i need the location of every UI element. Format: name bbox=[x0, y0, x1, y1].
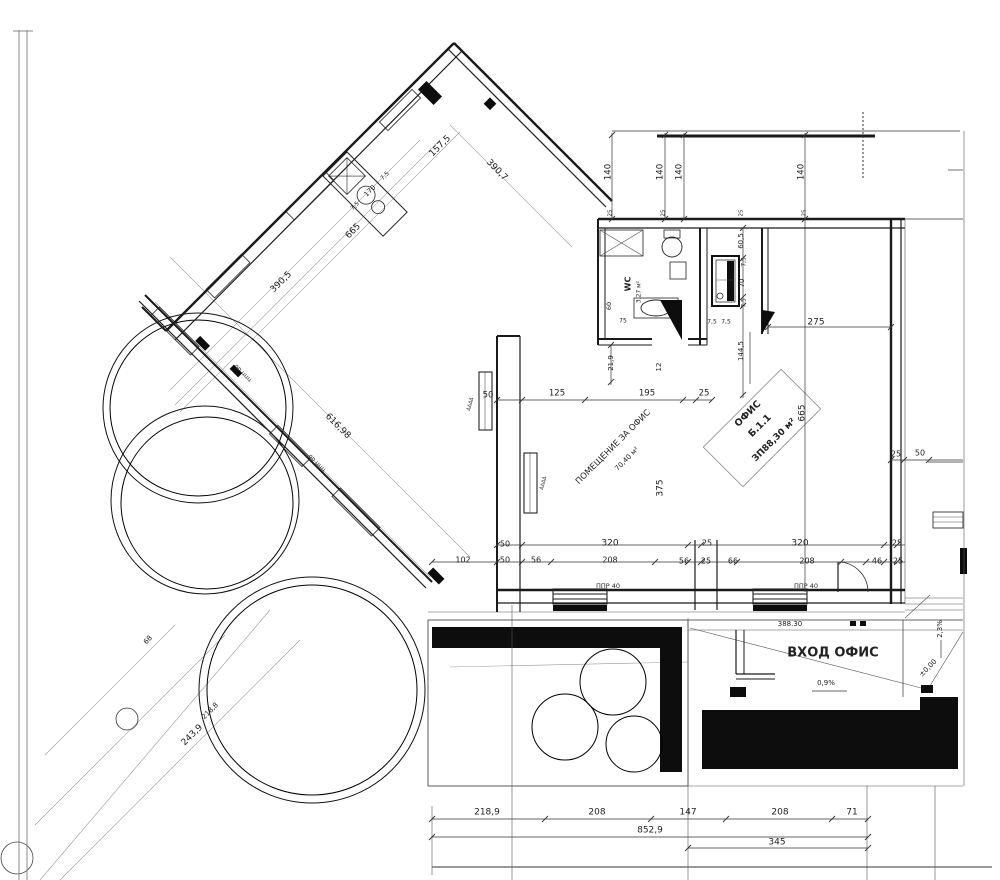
bed-border bbox=[660, 648, 682, 772]
dim-7-5-c: 7,5 bbox=[741, 257, 748, 267]
dim-195: 195 bbox=[639, 389, 655, 399]
door-leaf bbox=[660, 300, 682, 340]
wc-room bbox=[598, 219, 707, 345]
dim-852-9: 852,9 bbox=[637, 826, 663, 836]
dim-25-a: 25 bbox=[699, 389, 710, 399]
dim-144-5: 144,5 bbox=[737, 341, 745, 361]
radiator bbox=[524, 453, 537, 513]
dim-218-8: 218,8 bbox=[200, 701, 220, 721]
dim-208-3: 208 bbox=[588, 808, 605, 818]
dim-68: 68 bbox=[142, 634, 154, 646]
floor-plan-drawing: 157,57,51707,5665390,5390,7616,98ор цццо… bbox=[0, 0, 1000, 880]
dim-345: 345 bbox=[768, 838, 785, 848]
diagonal-wing bbox=[142, 43, 612, 340]
dim-25-w4: 25 bbox=[802, 209, 808, 216]
site-survey-lines bbox=[35, 125, 688, 880]
door bbox=[835, 562, 868, 604]
level-0-00: ±0,00 bbox=[918, 658, 939, 679]
boundary-wall bbox=[139, 295, 444, 588]
window bbox=[753, 589, 807, 611]
dim-390-5: 390,5 bbox=[269, 270, 294, 295]
dim-25-r1: 25 bbox=[702, 539, 712, 548]
dim-140-2: 140 bbox=[656, 164, 666, 180]
dim-25-r2: 25 bbox=[892, 539, 902, 548]
dim-7-5-a: 7,5 bbox=[349, 200, 361, 212]
dim-665-right: 665 bbox=[798, 404, 808, 421]
wc-area: 3,27 м² bbox=[636, 280, 643, 303]
dim-7-5-e: 7,5 bbox=[707, 319, 717, 326]
dim-46: 46 bbox=[872, 557, 882, 566]
dim-140-3: 140 bbox=[675, 164, 685, 180]
cabinet bbox=[670, 262, 686, 279]
tree-ring bbox=[199, 577, 425, 803]
shelf bbox=[600, 230, 643, 256]
dim-157-5: 157,5 bbox=[428, 134, 453, 159]
page-edge bbox=[13, 30, 33, 880]
dim-60: 60 bbox=[605, 302, 613, 310]
trees bbox=[1, 313, 425, 874]
dim-71: 71 bbox=[846, 808, 857, 818]
dim-75: 75 bbox=[619, 318, 627, 325]
dim-208-2: 208 bbox=[799, 557, 814, 566]
dim-7-5-b: 7,5 bbox=[379, 170, 391, 182]
dim-218-9: 218,9 bbox=[474, 808, 500, 818]
dim-147: 147 bbox=[679, 808, 696, 818]
tree bbox=[207, 585, 417, 795]
note-ppr-40-b: ППР 40 bbox=[794, 582, 818, 590]
reference-dots bbox=[152, 240, 894, 785]
room-office-hall-title: ПОМЕЩЕНИЕ ЗА ОФИС bbox=[574, 408, 653, 487]
window bbox=[553, 589, 607, 611]
radiator-marks-a: ΔΔΔΔ bbox=[466, 396, 475, 411]
slope-0-9: 0,9% bbox=[817, 679, 835, 687]
dim-125: 125 bbox=[549, 389, 565, 399]
elevation-388-30: 388.30 bbox=[778, 620, 803, 628]
dim-70: 70 bbox=[738, 279, 746, 288]
dim-616-98: 616,98 bbox=[323, 412, 353, 442]
dim-7-5-f: 7,5 bbox=[721, 319, 731, 326]
dim-25-w1: 25 bbox=[608, 209, 614, 216]
radiator bbox=[479, 372, 492, 430]
dim-56-1: 56 bbox=[531, 556, 541, 565]
dim-375: 375 bbox=[656, 479, 666, 496]
manhole bbox=[1, 842, 33, 874]
dim-320-1: 320 bbox=[601, 539, 618, 549]
dim-208-4: 208 bbox=[771, 808, 788, 818]
note-ppr-40-a: ППР 40 bbox=[596, 582, 620, 590]
dim-208-1: 208 bbox=[602, 556, 617, 565]
dim-50-r1: 50 bbox=[500, 540, 510, 549]
floor-plan-page: 157,57,51707,5665390,5390,7616,98ор цццо… bbox=[0, 0, 1000, 880]
wall-end bbox=[428, 568, 445, 585]
entrance-label: ВХОД ОФИС bbox=[787, 646, 878, 661]
window-block bbox=[286, 172, 334, 220]
wall-seal bbox=[484, 97, 497, 110]
dim-25-w2: 25 bbox=[661, 209, 667, 216]
radiator-marks-b: ΔΔΔΔ bbox=[539, 475, 548, 490]
dim-21-9: 21,9 bbox=[607, 355, 615, 371]
wall-seal bbox=[418, 81, 442, 105]
manhole bbox=[116, 708, 138, 730]
dim-665-diagonal: 665 bbox=[344, 222, 363, 241]
dim-390-7: 390,7 bbox=[484, 158, 509, 183]
dim-25-w3: 25 bbox=[739, 209, 745, 216]
dim-140-4: 140 bbox=[797, 164, 807, 180]
bed-border bbox=[432, 627, 682, 648]
window-block bbox=[206, 254, 250, 298]
dim-66: 66 bbox=[728, 557, 738, 566]
dim-140-1: 140 bbox=[604, 164, 614, 180]
wall-hatch-block bbox=[151, 307, 199, 355]
toilet bbox=[662, 230, 682, 257]
dim-25-r4: 25 bbox=[893, 557, 903, 566]
dim-275: 275 bbox=[807, 318, 824, 328]
dim-7-5-d: 7,5 bbox=[741, 298, 748, 308]
dim-320-2: 320 bbox=[791, 539, 808, 549]
dim-56-2: 56 bbox=[679, 557, 689, 566]
dim-25-b: 25 bbox=[891, 450, 901, 459]
slope-arrow-right-icon bbox=[846, 687, 856, 695]
slope-arrow-down-icon bbox=[937, 657, 945, 666]
dim-12: 12 bbox=[655, 363, 663, 372]
tree-small bbox=[606, 716, 662, 772]
wc-title: WC bbox=[624, 277, 633, 292]
tree-small bbox=[532, 694, 598, 760]
slope-2-3: 2,3% bbox=[936, 620, 944, 638]
dim-50-b: 50 bbox=[915, 449, 925, 458]
dim-25-r3: 25 bbox=[701, 557, 711, 566]
wall-hatch-block bbox=[332, 488, 380, 536]
dim-50-r2: 50 bbox=[500, 556, 510, 565]
tree-ring bbox=[111, 406, 299, 594]
dim-50-a: 50 bbox=[483, 391, 494, 401]
dim-60-5: 60,5 bbox=[737, 233, 745, 249]
curb-note-b: ор ццц bbox=[307, 453, 327, 473]
dim-102: 102 bbox=[455, 556, 470, 565]
dim-243-9: 243,9 bbox=[180, 723, 205, 748]
planting-bed bbox=[428, 620, 688, 786]
office-building bbox=[428, 112, 963, 612]
